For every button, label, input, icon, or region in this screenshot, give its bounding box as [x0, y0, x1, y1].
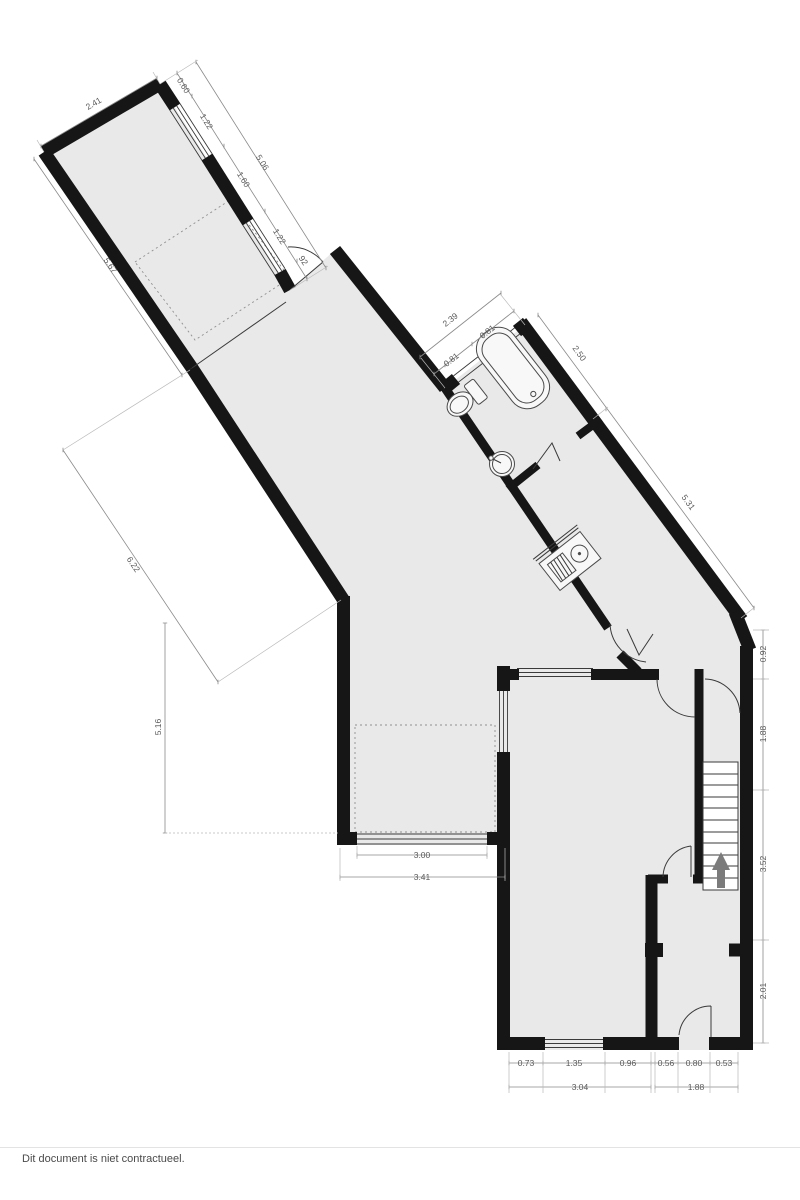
- dimension-label: 0.80: [686, 1058, 703, 1068]
- dimension-label: 1.22: [198, 112, 215, 132]
- dimension-label: 2.01: [758, 982, 768, 999]
- dimension-label: 1.35: [566, 1058, 583, 1068]
- dimension-label: 1.88: [688, 1082, 705, 1092]
- dimension-label: 5.06: [254, 153, 271, 173]
- dimension-label: 5.31: [680, 493, 698, 512]
- dimension-label: 1.22: [271, 227, 288, 247]
- dimension-label: 0.96: [620, 1058, 637, 1068]
- dimension-label: 5.16: [153, 718, 163, 735]
- washbasin: [489, 452, 515, 477]
- dimension-label: 1.88: [758, 725, 768, 742]
- dimension-label: 0.56: [658, 1058, 675, 1068]
- dimension-label: 1.60: [235, 170, 252, 190]
- dimension-label: 6.22: [125, 555, 143, 575]
- footer-divider: [0, 1147, 800, 1148]
- dimension-label: 2.39: [441, 310, 460, 328]
- footer-note: Dit document is niet contractueel.: [22, 1153, 185, 1165]
- dimension-label: 2.50: [571, 344, 589, 363]
- dimension-label: 0.60: [175, 76, 192, 96]
- dimension-label: 3.00: [414, 850, 431, 860]
- dimension-label: 0.81: [442, 350, 461, 368]
- dimension-label: 0.92: [758, 645, 768, 662]
- staircase: [703, 762, 738, 890]
- dimension-label: 3.04: [572, 1082, 589, 1092]
- dimension-label: 3.41: [414, 872, 431, 882]
- dimension-label: 0.53: [716, 1058, 733, 1068]
- floor-plan: 2.410.601.221.601.225.065.67922.390.810.…: [0, 0, 800, 1200]
- dimension-label: 0.73: [518, 1058, 535, 1068]
- dimension-label: 3.52: [758, 855, 768, 872]
- dimension-label: 2.41: [84, 95, 104, 112]
